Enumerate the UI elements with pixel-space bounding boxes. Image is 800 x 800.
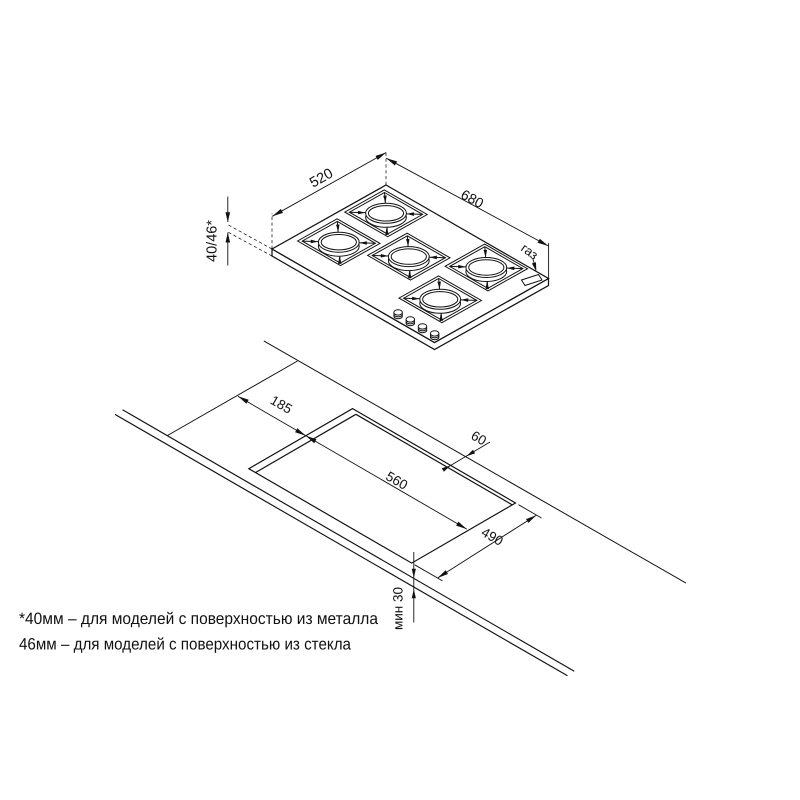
svg-text:*40мм – для моделей с поверхно: *40мм – для моделей с поверхностью из ме… [19, 610, 379, 628]
svg-text:40/46*: 40/46* [205, 220, 221, 262]
svg-text:46мм – для моделей с поверхнос: 46мм – для моделей с поверхностью из сте… [19, 636, 352, 654]
svg-text:мин 30: мин 30 [390, 587, 405, 630]
